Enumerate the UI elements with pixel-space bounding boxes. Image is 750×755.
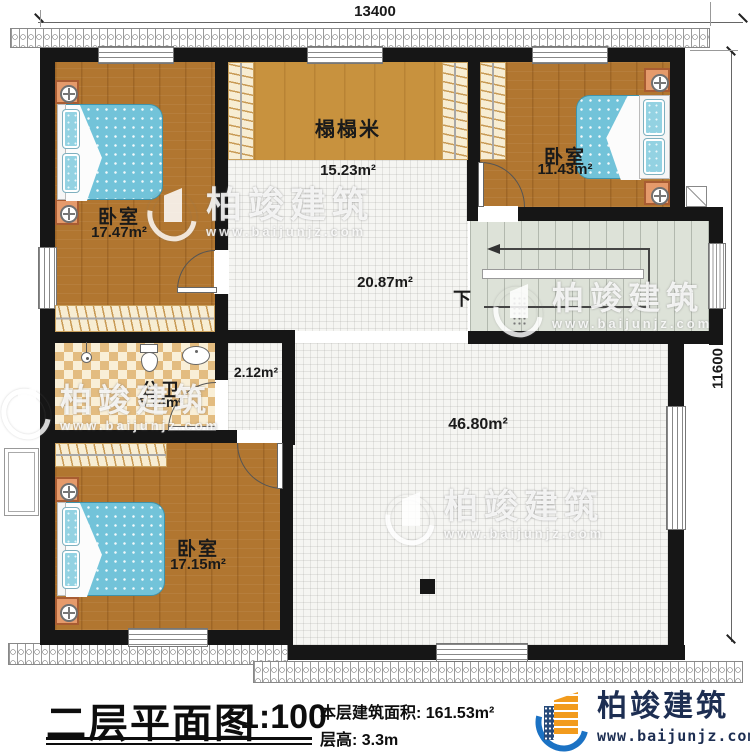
stair-direction-line <box>648 248 650 308</box>
nightstand <box>644 68 670 92</box>
door-opening <box>478 206 518 222</box>
wall-corridor-right <box>282 330 295 445</box>
pillow <box>644 139 664 174</box>
hall-floor <box>282 343 668 645</box>
drawing-title: 二层平面图 <box>46 691 256 749</box>
pillow <box>63 110 79 148</box>
roof-eave-bottom-right <box>253 661 743 683</box>
room-area-bedroom2: 11.43m² <box>505 161 625 178</box>
wardrobe-bedroom2 <box>480 62 506 160</box>
window-hall-bottom <box>436 643 528 662</box>
floor-plan-page: 13400 11600 <box>0 0 750 755</box>
floor-height-text: 层高: 3.3m <box>320 726 398 750</box>
wardrobe-bedroom3 <box>55 443 167 467</box>
door-leaf-bedroom3 <box>277 443 283 489</box>
shower-head <box>81 352 92 363</box>
brand-url: www.baijunjz.com <box>597 727 750 745</box>
table-lamp <box>651 74 669 92</box>
room-label-tatami: 榻榻米 <box>254 113 442 142</box>
stair-direction-arrow <box>487 244 500 254</box>
door-leaf-bedroom2 <box>478 162 484 207</box>
door-leaf-bathroom <box>168 426 216 431</box>
wall-bedroom1-right <box>215 48 228 343</box>
extension-line <box>690 50 738 51</box>
window-platform-left <box>4 448 39 516</box>
nightstand <box>644 181 670 205</box>
sink <box>182 346 210 365</box>
pillow <box>644 100 664 135</box>
mattress <box>65 104 163 200</box>
floor-area-text: 本层建筑面积: 161.53m² <box>320 699 494 723</box>
pillow <box>63 154 79 192</box>
nightstand <box>55 477 79 502</box>
room-area-tatami: 15.23m² <box>254 162 442 179</box>
flue-shaft <box>686 186 707 207</box>
drawing-scale: 1:100 <box>240 698 327 737</box>
stair-direction-line <box>500 248 650 250</box>
nightstand <box>55 597 79 625</box>
wardrobe-tatami-right <box>442 62 468 160</box>
table-lamp <box>60 85 78 103</box>
room-area-bathroom: 5.74m² <box>100 394 222 410</box>
room-area-hall: 46.80m² <box>420 416 536 434</box>
top-dimension-label: 13400 <box>0 3 750 20</box>
tatami-platform <box>254 62 442 160</box>
door-leaf-bedroom1 <box>177 287 217 293</box>
wall-bathroom-bottom <box>40 430 237 443</box>
right-dimension-label: 11600 <box>710 337 727 401</box>
column <box>420 579 435 594</box>
nightstand <box>55 80 79 104</box>
extension-line <box>710 2 711 26</box>
window-bedroom2-top <box>532 46 608 64</box>
title-rule <box>46 737 312 740</box>
pillow <box>63 508 79 545</box>
wall-left <box>40 48 55 645</box>
hall-upper-floor <box>228 160 468 331</box>
top-dimension-line <box>38 22 743 23</box>
stair-break-dots <box>512 296 526 326</box>
roof-eave-top <box>10 28 710 48</box>
window-tatami-top <box>307 46 383 64</box>
wardrobe-tatami-left <box>228 62 254 160</box>
stair-rail <box>482 269 644 279</box>
room-area-bedroom3: 17.15m² <box>118 556 278 573</box>
window-bedroom1-top <box>98 46 174 64</box>
title-rule <box>46 743 312 745</box>
pillow <box>63 551 79 588</box>
extension-line <box>40 10 41 27</box>
room-area-bedroom1: 17.47m² <box>58 224 180 241</box>
room-area-hall-upper: 20.87m² <box>330 274 440 291</box>
wall-stair-bottom <box>468 331 723 344</box>
table-lamp <box>60 483 78 501</box>
stair-direction-line <box>484 306 650 308</box>
brand-logo-icon <box>536 690 590 748</box>
window-bedroom3-bottom <box>128 628 208 647</box>
wardrobe-bedroom1 <box>55 305 215 332</box>
table-lamp <box>651 187 669 205</box>
room-area-corridor: 2.12m² <box>226 364 286 380</box>
window-hall-right <box>666 406 686 530</box>
right-dimension-line <box>731 52 732 642</box>
brand-name: 柏竣建筑 <box>597 692 729 722</box>
corridor-floor <box>228 343 282 430</box>
window-stair-right <box>708 243 726 309</box>
bed-top-left <box>57 104 163 200</box>
stairs-down-label: 下 <box>453 285 477 311</box>
wall-bedroom2-right <box>670 48 685 221</box>
shower-hose <box>86 342 87 353</box>
table-lamp <box>60 604 78 622</box>
window-bedroom1-left <box>38 247 57 309</box>
